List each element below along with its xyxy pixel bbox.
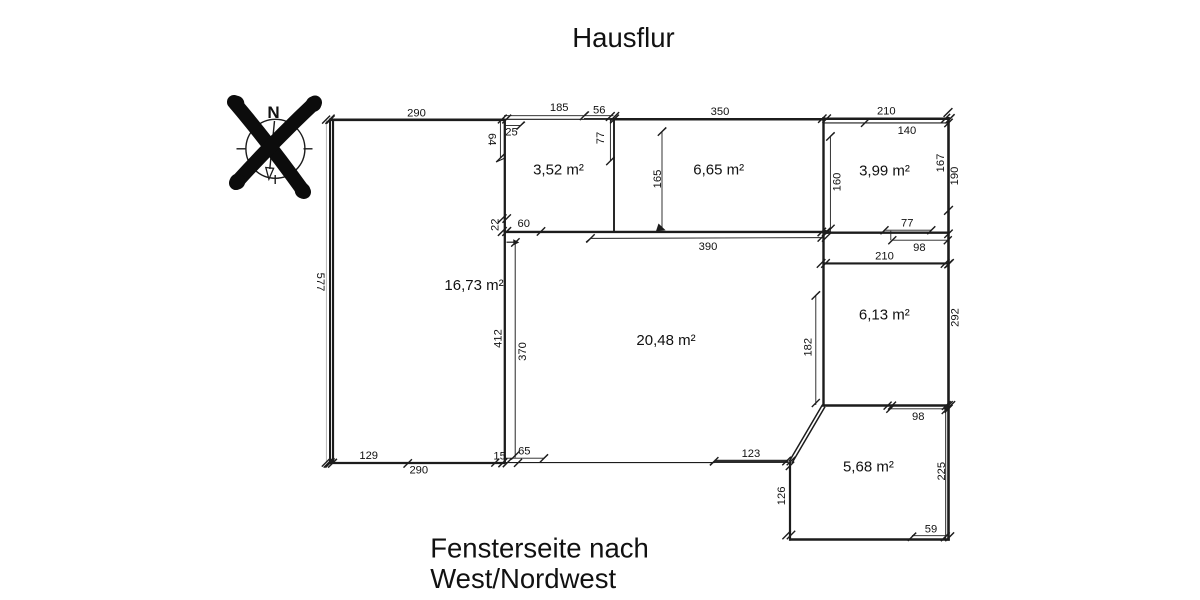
svg-text:West/Nordwest: West/Nordwest — [430, 563, 616, 594]
svg-text:20,48 m²: 20,48 m² — [636, 332, 695, 349]
svg-text:60: 60 — [517, 218, 529, 230]
svg-text:77: 77 — [901, 217, 913, 229]
svg-text:412: 412 — [493, 329, 505, 348]
svg-text:Hausflur: Hausflur — [572, 22, 674, 53]
svg-text:370: 370 — [517, 342, 529, 361]
svg-text:N: N — [267, 103, 279, 122]
svg-text:182: 182 — [802, 338, 814, 357]
svg-text:3,52 m²: 3,52 m² — [533, 161, 584, 178]
svg-text:65: 65 — [518, 445, 530, 457]
svg-text:98: 98 — [912, 411, 924, 423]
svg-text:59: 59 — [925, 523, 937, 535]
svg-text:290: 290 — [407, 108, 426, 120]
svg-text:167: 167 — [935, 154, 947, 173]
svg-text:56: 56 — [593, 105, 605, 117]
svg-text:210: 210 — [875, 251, 894, 263]
svg-text:185: 185 — [550, 102, 569, 114]
svg-text:390: 390 — [699, 241, 718, 253]
svg-text:6,65 m²: 6,65 m² — [693, 161, 744, 178]
svg-text:25: 25 — [505, 126, 517, 138]
svg-text:350: 350 — [711, 106, 730, 118]
svg-text:210: 210 — [877, 105, 896, 117]
svg-text:15: 15 — [493, 450, 505, 462]
svg-text:6,13 m²: 6,13 m² — [859, 306, 910, 323]
svg-text:129: 129 — [359, 450, 378, 462]
svg-text:165: 165 — [652, 170, 664, 189]
svg-text:290: 290 — [409, 465, 428, 477]
svg-text:64: 64 — [485, 133, 497, 145]
svg-text:16,73 m²: 16,73 m² — [444, 277, 503, 294]
svg-text:Fensterseite nach: Fensterseite nach — [430, 533, 649, 564]
svg-text:77: 77 — [595, 132, 607, 144]
svg-text:577: 577 — [314, 273, 326, 292]
svg-text:3,99 m²: 3,99 m² — [859, 162, 910, 179]
svg-text:126: 126 — [776, 487, 788, 506]
svg-text:190: 190 — [949, 167, 961, 186]
svg-text:98: 98 — [913, 242, 925, 254]
svg-text:225: 225 — [936, 462, 948, 481]
svg-text:22: 22 — [490, 218, 502, 230]
svg-text:123: 123 — [742, 448, 761, 460]
svg-text:292: 292 — [949, 308, 961, 327]
svg-text:5,68 m²: 5,68 m² — [843, 459, 894, 476]
svg-text:160: 160 — [831, 173, 843, 192]
svg-text:140: 140 — [898, 125, 917, 137]
